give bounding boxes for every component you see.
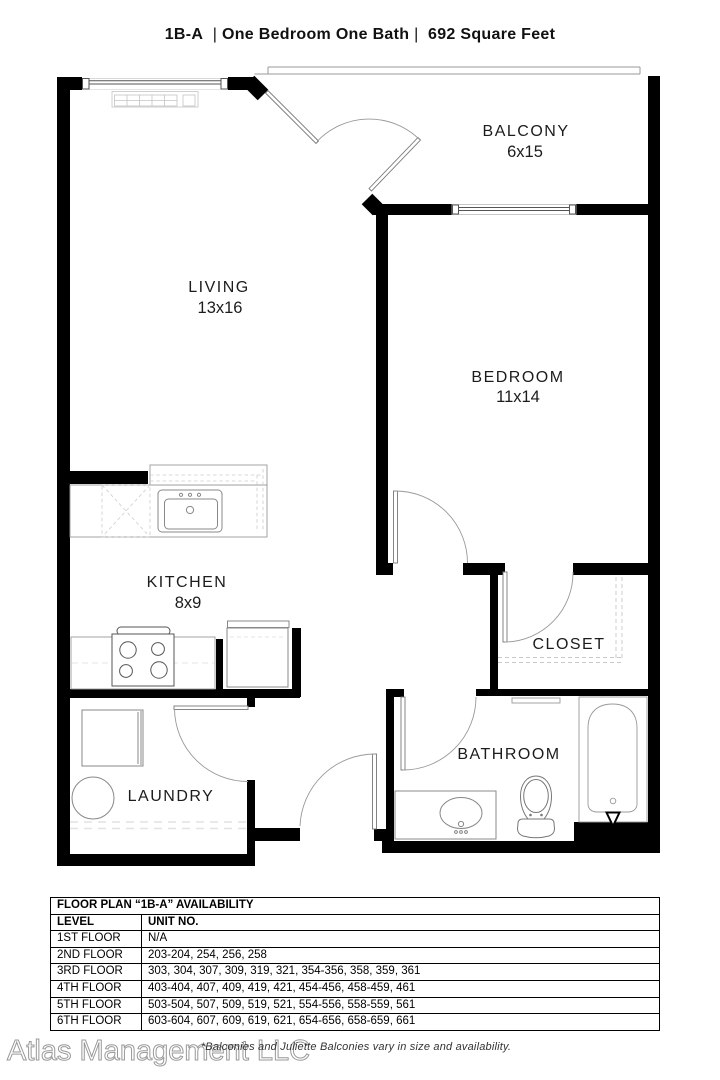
svg-text:BALCONY: BALCONY (483, 123, 570, 140)
svg-text:6x15: 6x15 (507, 143, 543, 161)
svg-text:8x9: 8x9 (175, 594, 202, 612)
svg-text:LAUNDRY: LAUNDRY (128, 788, 215, 805)
svg-text:13x16: 13x16 (198, 299, 243, 317)
svg-text:LIVING: LIVING (188, 279, 249, 296)
svg-text:BEDROOM: BEDROOM (471, 369, 564, 386)
svg-text:KITCHEN: KITCHEN (147, 574, 228, 591)
svg-text:11x14: 11x14 (496, 388, 540, 406)
svg-text:CLOSET: CLOSET (532, 636, 605, 653)
svg-text:BATHROOM: BATHROOM (457, 746, 560, 763)
